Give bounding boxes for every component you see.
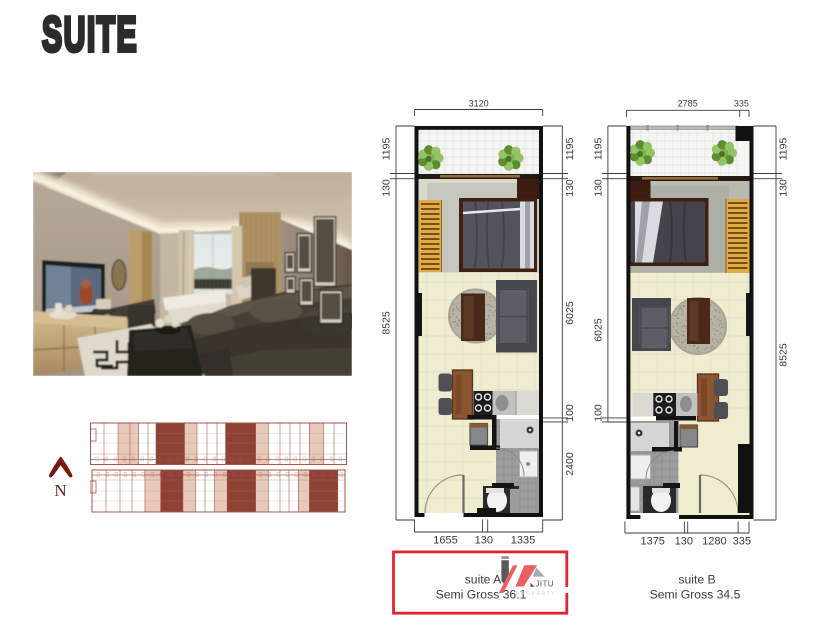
svg-text:1655: 1655	[433, 535, 457, 547]
svg-text:1195: 1195	[381, 138, 393, 161]
svg-text:1195: 1195	[778, 138, 790, 161]
svg-text:1335: 1335	[511, 535, 535, 547]
svg-text:335: 335	[734, 99, 749, 109]
svg-text:2400: 2400	[564, 452, 576, 476]
svg-text:Semi Gross 36.1: Semi Gross 36.1	[436, 588, 527, 602]
svg-text:8525: 8525	[778, 343, 790, 367]
svg-text:1195: 1195	[564, 138, 576, 161]
svg-text:suite A: suite A	[465, 573, 502, 587]
svg-text:6025: 6025	[593, 318, 605, 342]
svg-text:130: 130	[778, 179, 790, 197]
svg-text:130: 130	[564, 179, 576, 197]
svg-text:3120: 3120	[469, 99, 489, 109]
svg-text:100: 100	[593, 404, 605, 422]
svg-text:130: 130	[381, 179, 393, 197]
svg-text:100: 100	[564, 404, 576, 422]
svg-text:1375: 1375	[640, 536, 664, 548]
svg-text:JITU: JITU	[536, 580, 555, 589]
svg-text:PROPERTY: PROPERTY	[516, 591, 556, 597]
svg-text:2785: 2785	[678, 99, 698, 109]
svg-text:suite B: suite B	[678, 573, 715, 587]
svg-text:1195: 1195	[593, 138, 605, 161]
svg-text:335: 335	[733, 536, 751, 548]
svg-text:130: 130	[475, 535, 493, 547]
svg-text:130: 130	[675, 536, 693, 548]
svg-text:8525: 8525	[381, 311, 393, 335]
svg-text:1280: 1280	[702, 536, 726, 548]
svg-text:Semi Gross 34.5: Semi Gross 34.5	[650, 588, 741, 602]
svg-text:130: 130	[593, 179, 605, 197]
svg-text:6025: 6025	[564, 301, 576, 325]
svg-text:N: N	[54, 481, 66, 500]
